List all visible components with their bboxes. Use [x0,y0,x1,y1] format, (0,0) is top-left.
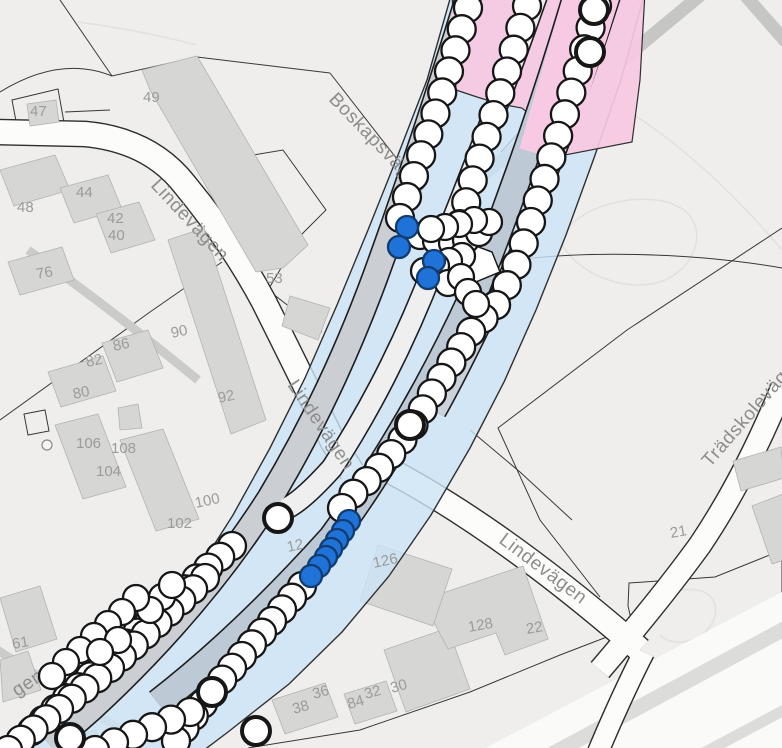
house-number-label: 47 [30,103,47,120]
map-marker-bold[interactable] [396,411,424,439]
map-marker-bold[interactable] [198,678,226,706]
house-number-label: 42 [107,210,124,227]
map-marker[interactable] [87,639,113,665]
house-number-label: 76 [35,263,54,283]
house-number-label: 44 [76,184,93,201]
tree-symbol-icon [42,440,52,450]
map-marker[interactable] [39,663,65,689]
house-number-label: 108 [111,440,136,457]
map-marker[interactable] [418,216,444,242]
map-marker-bold[interactable] [242,717,270,745]
house-number-label: 48 [17,199,34,216]
house-number-label: 82 [84,351,104,371]
house-number-label: 80 [71,383,91,403]
map-canvas[interactable]: BoskapsvägenLindevägenLindevägenLindeväg… [0,0,782,748]
house-number-label: 22 [525,618,544,638]
house-number-label: 86 [111,335,131,355]
house-number-label: 106 [76,435,101,452]
map-marker-selected[interactable] [388,236,410,258]
map-marker-bold[interactable] [56,724,84,748]
house-number-label: 53 [266,270,283,287]
map-marker[interactable] [159,572,185,598]
map-svg: BoskapsvägenLindevägenLindevägenLindeväg… [0,0,782,748]
house-number-label: 61 [11,633,30,653]
map-marker-bold[interactable] [264,504,292,532]
map-marker-bold[interactable] [576,38,604,66]
house-number-label: 21 [669,522,688,542]
map-marker-selected[interactable] [417,267,439,289]
map-marker[interactable] [463,291,489,317]
house-number-label: 92 [216,387,236,407]
house-number-label: 40 [108,227,125,244]
building [118,404,142,430]
map-marker-bold[interactable] [580,0,608,24]
house-number-label: 104 [96,463,121,480]
house-number-label: 102 [167,515,192,532]
house-number-label: 90 [169,322,189,342]
map-marker-selected[interactable] [396,216,418,238]
house-number-label: 49 [143,89,160,106]
house-number-label: 12 [285,536,305,556]
map-marker-selected[interactable] [300,565,322,587]
